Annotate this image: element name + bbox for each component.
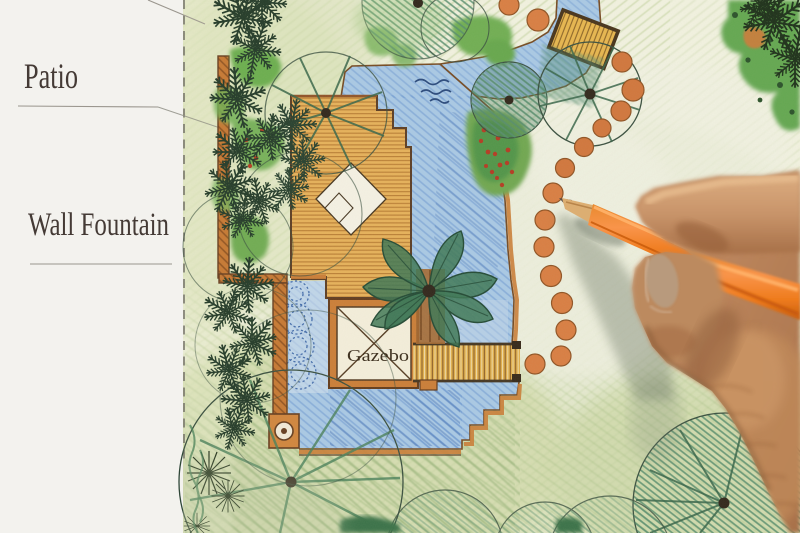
svg-text:Wall Fountain: Wall Fountain xyxy=(28,207,169,243)
svg-text:Patio: Patio xyxy=(24,56,78,96)
